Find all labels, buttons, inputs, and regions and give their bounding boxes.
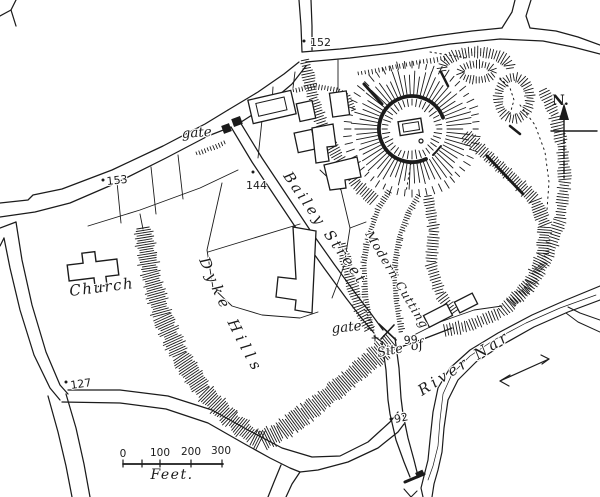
label-dyke-hills: Dyke Hills [195,253,268,377]
spot-height-92: 92 [393,410,409,426]
scale-bar: 0 100 200 300 Feet. [120,445,231,483]
north-label: N. [552,93,569,109]
label-gate-north: gate [181,124,212,142]
scale-tick-0: 0 [120,448,127,460]
svg-text:Dyke Hills: Dyke Hills [195,253,268,377]
scale-tick-300: 300 [211,445,231,457]
historic-earthworks-map: 0 100 200 300 Feet. N. Church gate gate … [0,0,600,497]
spot-height-144: 144 [246,179,267,192]
label-river-nar: River Nar [414,327,514,400]
spot-height-99: 99 [403,333,418,347]
map-canvas: 0 100 200 300 Feet. N. Church gate gate … [0,0,600,497]
scale-tick-200: 200 [181,446,201,458]
label-site-of: Site of [376,337,427,361]
scale-tick-100: 100 [150,447,170,459]
earthwork-hachures [134,46,571,450]
spot-height-152: 152 [310,36,331,49]
spot-height-153: 153 [106,173,128,188]
label-gate-south: gate [331,318,363,337]
svg-text:River Nar: River Nar [414,327,514,400]
map-labels: Church gate gate Site of Bailey Street D… [68,124,513,400]
scale-unit-label: Feet. [149,467,193,483]
